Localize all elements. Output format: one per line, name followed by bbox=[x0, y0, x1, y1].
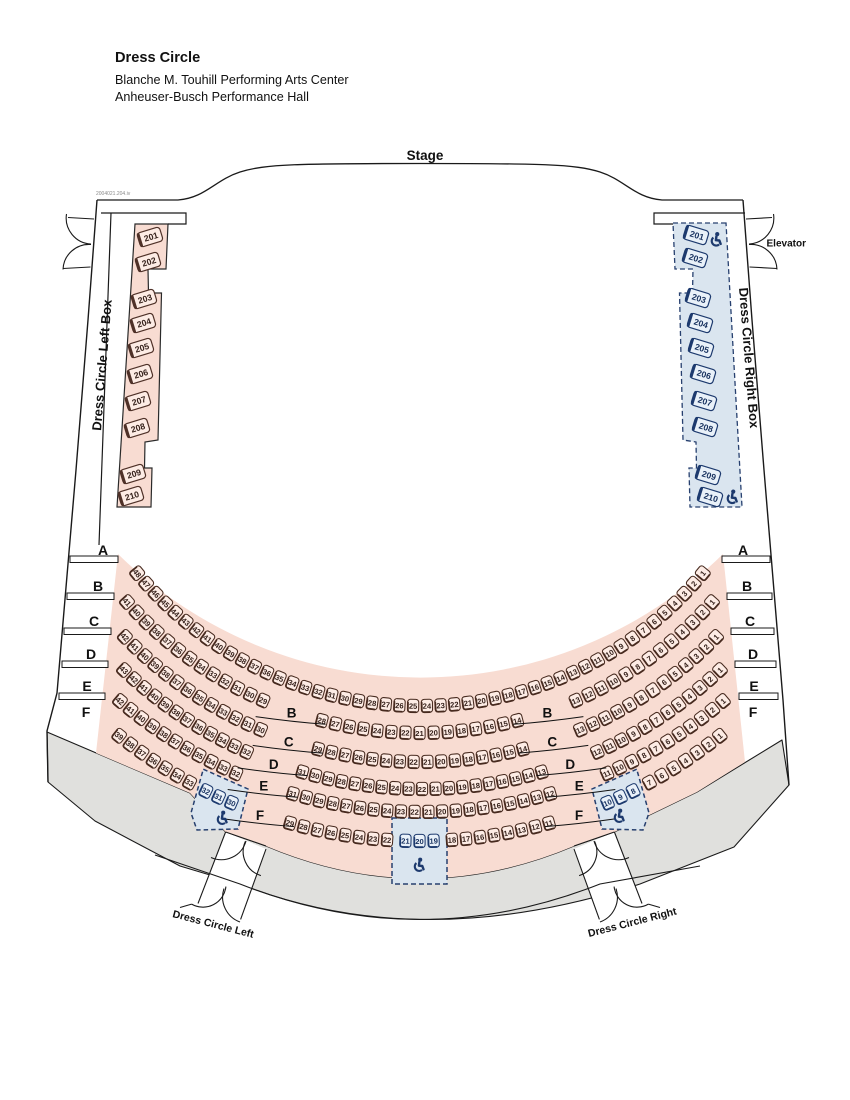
svg-text:18: 18 bbox=[447, 835, 456, 845]
svg-text:E: E bbox=[749, 678, 758, 694]
svg-text:F: F bbox=[575, 808, 583, 823]
svg-text:22: 22 bbox=[450, 700, 459, 710]
svg-text:26: 26 bbox=[326, 828, 336, 838]
svg-text:19: 19 bbox=[443, 728, 452, 738]
svg-text:24: 24 bbox=[391, 784, 401, 794]
svg-text:A: A bbox=[738, 542, 748, 558]
svg-text:C: C bbox=[284, 734, 294, 749]
svg-text:22: 22 bbox=[410, 808, 419, 817]
svg-text:23: 23 bbox=[368, 834, 377, 844]
svg-text:18: 18 bbox=[464, 755, 473, 765]
svg-text:F: F bbox=[749, 704, 758, 720]
svg-text:20: 20 bbox=[415, 837, 423, 846]
svg-text:19: 19 bbox=[450, 756, 459, 766]
svg-text:24: 24 bbox=[423, 702, 432, 711]
svg-text:2004021.204.iv: 2004021.204.iv bbox=[96, 191, 131, 197]
svg-text:A: A bbox=[98, 542, 108, 558]
svg-text:F: F bbox=[82, 704, 91, 720]
svg-text:E: E bbox=[575, 778, 584, 793]
svg-text:25: 25 bbox=[377, 783, 387, 793]
svg-text:26: 26 bbox=[363, 781, 373, 791]
svg-text:16: 16 bbox=[475, 833, 485, 843]
svg-text:26: 26 bbox=[395, 701, 404, 710]
svg-text:Anheuser-Busch Performance Hal: Anheuser-Busch Performance Hall bbox=[115, 90, 309, 104]
svg-text:23: 23 bbox=[436, 701, 445, 710]
svg-text:B: B bbox=[93, 578, 103, 594]
svg-text:27: 27 bbox=[341, 801, 351, 811]
svg-text:17: 17 bbox=[461, 834, 470, 844]
svg-text:19: 19 bbox=[429, 836, 438, 845]
svg-text:17: 17 bbox=[471, 724, 481, 734]
svg-text:18: 18 bbox=[465, 805, 474, 815]
svg-text:B: B bbox=[287, 706, 297, 721]
svg-text:19: 19 bbox=[458, 783, 467, 793]
svg-text:19: 19 bbox=[451, 806, 460, 816]
svg-text:16: 16 bbox=[492, 801, 502, 811]
svg-text:20: 20 bbox=[477, 696, 487, 706]
svg-text:B: B bbox=[543, 706, 553, 721]
svg-text:17: 17 bbox=[478, 803, 488, 813]
svg-text:28: 28 bbox=[328, 799, 338, 809]
svg-text:23: 23 bbox=[387, 728, 396, 738]
svg-text:D: D bbox=[86, 646, 96, 662]
svg-text:17: 17 bbox=[477, 753, 487, 763]
svg-text:21: 21 bbox=[415, 729, 424, 738]
svg-text:C: C bbox=[745, 613, 755, 629]
svg-text:D: D bbox=[748, 646, 758, 662]
svg-text:23: 23 bbox=[395, 757, 404, 766]
svg-text:E: E bbox=[82, 678, 91, 694]
svg-text:Stage: Stage bbox=[407, 148, 444, 163]
svg-text:D: D bbox=[269, 757, 279, 772]
svg-text:C: C bbox=[547, 734, 557, 749]
svg-text:23: 23 bbox=[404, 784, 413, 793]
svg-text:20: 20 bbox=[437, 757, 446, 766]
svg-text:30: 30 bbox=[340, 693, 350, 704]
svg-text:27: 27 bbox=[381, 700, 390, 710]
svg-text:25: 25 bbox=[409, 702, 418, 711]
svg-text:22: 22 bbox=[401, 728, 410, 737]
svg-text:19: 19 bbox=[490, 693, 500, 704]
svg-text:21: 21 bbox=[424, 808, 433, 817]
svg-text:B: B bbox=[742, 578, 752, 594]
svg-text:29: 29 bbox=[354, 696, 364, 706]
svg-text:28: 28 bbox=[367, 698, 377, 708]
svg-text:28: 28 bbox=[337, 777, 347, 787]
svg-text:21: 21 bbox=[423, 758, 432, 767]
svg-text:20: 20 bbox=[444, 784, 453, 794]
svg-text:27: 27 bbox=[350, 779, 360, 789]
svg-text:Blanche M. Touhill Performing: Blanche M. Touhill Performing Arts Cente… bbox=[115, 73, 349, 87]
svg-text:16: 16 bbox=[491, 750, 501, 760]
svg-text:D: D bbox=[565, 757, 575, 772]
svg-text:16: 16 bbox=[485, 722, 495, 732]
svg-text:21: 21 bbox=[431, 784, 441, 793]
svg-text:17: 17 bbox=[484, 779, 494, 789]
svg-text:26: 26 bbox=[355, 803, 365, 813]
svg-text:20: 20 bbox=[429, 728, 438, 737]
svg-text:27: 27 bbox=[340, 750, 350, 760]
svg-text:20: 20 bbox=[438, 807, 447, 816]
svg-text:24: 24 bbox=[383, 806, 393, 816]
svg-text:22: 22 bbox=[409, 758, 418, 767]
svg-text:Elevator: Elevator bbox=[767, 239, 807, 250]
svg-text:23: 23 bbox=[396, 807, 405, 816]
svg-text:C: C bbox=[89, 613, 99, 629]
svg-text:F: F bbox=[256, 808, 264, 823]
svg-text:22: 22 bbox=[383, 835, 392, 845]
svg-text:26: 26 bbox=[344, 722, 354, 732]
svg-text:E: E bbox=[259, 778, 268, 793]
svg-text:18: 18 bbox=[457, 726, 466, 736]
svg-text:21: 21 bbox=[401, 836, 410, 845]
svg-text:22: 22 bbox=[418, 785, 426, 794]
svg-text:18: 18 bbox=[471, 781, 481, 791]
svg-text:26: 26 bbox=[354, 753, 364, 763]
svg-text:16: 16 bbox=[497, 777, 507, 787]
svg-text:24: 24 bbox=[381, 756, 391, 766]
svg-text:Dress Circle: Dress Circle bbox=[115, 50, 200, 66]
